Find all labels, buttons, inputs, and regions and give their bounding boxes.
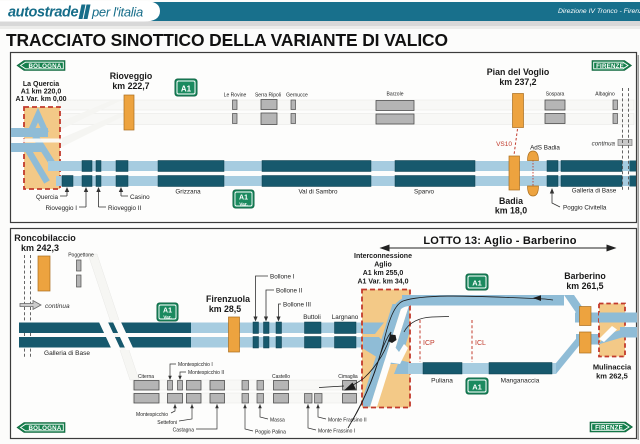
svg-text:A1 km 255,0: A1 km 255,0 bbox=[363, 270, 404, 277]
svg-text:A1: A1 bbox=[472, 383, 482, 392]
svg-text:Sparvo: Sparvo bbox=[414, 189, 434, 196]
svg-text:Galleria di Base: Galleria di Base bbox=[572, 188, 617, 195]
svg-text:Monte Frassino II: Monte Frassino II bbox=[328, 418, 367, 424]
svg-text:Poggettone: Poggettone bbox=[68, 253, 94, 259]
svg-text:Montespicchio: Montespicchio bbox=[136, 412, 168, 418]
svg-text:Albagino: Albagino bbox=[595, 92, 615, 98]
svg-text:Galleria di Base: Galleria di Base bbox=[44, 350, 90, 357]
svg-text:Rioveggio I: Rioveggio I bbox=[45, 205, 77, 212]
svg-text:Citerna: Citerna bbox=[138, 374, 154, 380]
svg-text:km 237,2: km 237,2 bbox=[499, 77, 536, 87]
svg-text:Interconnessione: Interconnessione bbox=[354, 253, 412, 260]
svg-text:km 262,5: km 262,5 bbox=[596, 372, 628, 381]
svg-text:Poggio Civitella: Poggio Civitella bbox=[563, 205, 607, 212]
svg-text:Manganaccia: Manganaccia bbox=[501, 378, 540, 385]
svg-text:Settefoni: Settefoni bbox=[157, 420, 177, 426]
svg-text:ICP: ICP bbox=[423, 340, 435, 347]
svg-text:Sospara: Sospara bbox=[546, 92, 565, 98]
svg-text:Le Rovine: Le Rovine bbox=[224, 93, 247, 99]
svg-text:FIRENZE: FIRENZE bbox=[596, 63, 624, 70]
svg-text:Montespicchio I: Montespicchio I bbox=[178, 362, 213, 368]
svg-text:ICL: ICL bbox=[475, 340, 486, 347]
svg-text:Quercia: Quercia bbox=[36, 194, 59, 201]
svg-text:Bollone II: Bollone II bbox=[276, 288, 303, 295]
svg-text:Grizzana: Grizzana bbox=[175, 189, 201, 196]
svg-text:km 28,5: km 28,5 bbox=[209, 304, 241, 314]
svg-text:Roncobilaccio: Roncobilaccio bbox=[14, 233, 76, 243]
svg-text:Bollone III: Bollone III bbox=[283, 302, 311, 309]
svg-text:TRACCIATO SINOTTICO DELLA VARI: TRACCIATO SINOTTICO DELLA VARIANTE DI VA… bbox=[6, 30, 448, 50]
svg-text:Buttoli: Buttoli bbox=[303, 314, 321, 321]
svg-text:Serra Ripoli: Serra Ripoli bbox=[255, 93, 281, 99]
svg-text:Rioveggio: Rioveggio bbox=[110, 71, 153, 81]
svg-text:km 261,5: km 261,5 bbox=[566, 281, 603, 291]
svg-text:BOLOGNA: BOLOGNA bbox=[28, 425, 61, 432]
svg-text:Direzione IV Tronco - Firenze: Direzione IV Tronco - Firenze bbox=[558, 8, 640, 15]
svg-text:Gernucce: Gernucce bbox=[286, 93, 308, 99]
svg-text:BOLOGNA: BOLOGNA bbox=[28, 63, 61, 70]
svg-text:km 18,0: km 18,0 bbox=[495, 206, 527, 216]
svg-text:km 242,3: km 242,3 bbox=[21, 243, 59, 253]
svg-text:Mulinaccia: Mulinaccia bbox=[593, 363, 632, 372]
svg-text:VS10: VS10 bbox=[496, 141, 512, 148]
svg-text:Aglio: Aglio bbox=[374, 262, 392, 269]
svg-text:Barberino: Barberino bbox=[564, 271, 606, 281]
svg-text:A1: A1 bbox=[181, 85, 192, 94]
svg-text:continua: continua bbox=[592, 141, 616, 148]
svg-text:FIRENZE: FIRENZE bbox=[595, 425, 623, 432]
svg-text:Badia: Badia bbox=[499, 196, 523, 206]
svg-text:Rioveggio II: Rioveggio II bbox=[108, 205, 142, 212]
svg-text:Montespicchio II: Montespicchio II bbox=[188, 370, 224, 376]
svg-text:Val di Sambro: Val di Sambro bbox=[298, 189, 338, 196]
svg-text:LOTTO 13: Aglio - Barberino: LOTTO 13: Aglio - Barberino bbox=[423, 235, 576, 247]
svg-text:Monte Frassino I: Monte Frassino I bbox=[318, 429, 355, 435]
svg-text:Largnano: Largnano bbox=[332, 314, 359, 321]
svg-text:Cimaglia: Cimaglia bbox=[338, 374, 358, 380]
svg-text:Var.: Var. bbox=[163, 315, 172, 321]
svg-text:continua: continua bbox=[45, 303, 70, 310]
svg-text:Massa: Massa bbox=[270, 418, 285, 424]
svg-text:A1 km 220,0: A1 km 220,0 bbox=[21, 89, 62, 96]
svg-text:autostrade: autostrade bbox=[8, 5, 78, 21]
svg-text:Firenzuola: Firenzuola bbox=[206, 294, 250, 304]
svg-text:A1 Var. km 0,00: A1 Var. km 0,00 bbox=[16, 96, 67, 103]
svg-text:AdS Badia: AdS Badia bbox=[530, 145, 560, 152]
svg-text:Bollone I: Bollone I bbox=[270, 274, 295, 281]
svg-text:Poggio Palina: Poggio Palina bbox=[255, 430, 286, 436]
svg-text:Pian del Voglio: Pian del Voglio bbox=[487, 67, 550, 77]
svg-text:A1: A1 bbox=[163, 308, 172, 315]
svg-text:A1: A1 bbox=[239, 195, 248, 202]
svg-text:Casino: Casino bbox=[130, 194, 150, 201]
svg-text:A1 Var. km 34,0: A1 Var. km 34,0 bbox=[358, 279, 409, 286]
svg-text:A1: A1 bbox=[472, 279, 482, 288]
svg-text:Puliana: Puliana bbox=[431, 378, 453, 385]
svg-text:La Quercia: La Quercia bbox=[23, 81, 59, 88]
svg-text:km 222,7: km 222,7 bbox=[112, 81, 149, 91]
svg-text:Castagna: Castagna bbox=[173, 428, 195, 434]
svg-text:Var.: Var. bbox=[239, 202, 248, 208]
svg-text:Barzole: Barzole bbox=[387, 92, 404, 98]
svg-text:per l'italia: per l'italia bbox=[91, 5, 143, 20]
svg-text:Castello: Castello bbox=[272, 374, 290, 380]
